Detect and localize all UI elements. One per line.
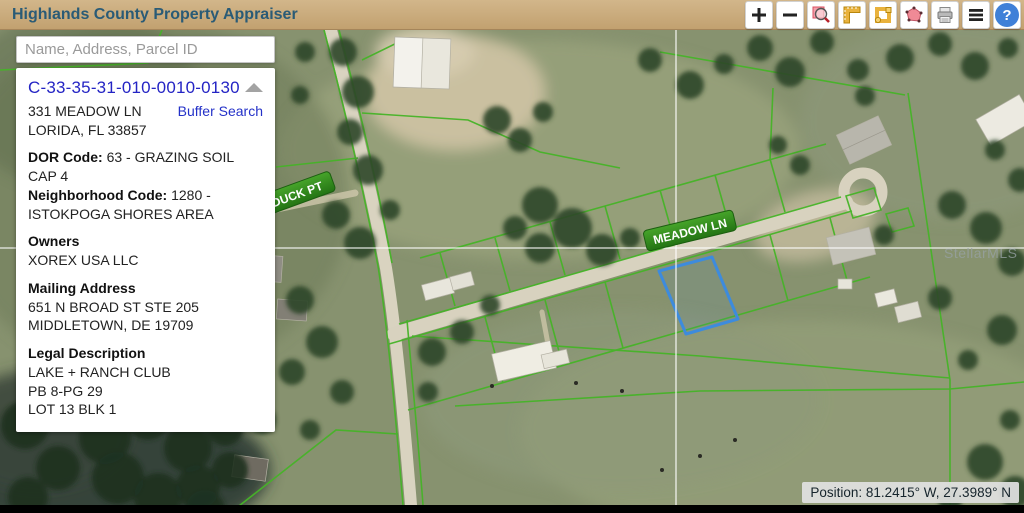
parcel-city: LORIDA, FL 33857 <box>28 121 263 140</box>
imagery-watermark: StellarMLS <box>944 245 1017 261</box>
owners-value: XOREX USA LLC <box>28 251 263 270</box>
draw-buffer-polygon-button[interactable] <box>900 1 928 29</box>
minus-icon <box>780 5 800 25</box>
corner-ruler-icon <box>842 5 862 25</box>
zoom-window-button[interactable] <box>807 1 835 29</box>
zoom-out-button[interactable] <box>776 1 804 29</box>
printer-icon <box>935 5 955 25</box>
plus-icon <box>749 5 769 25</box>
legal-line2: PB 8-PG 29 <box>28 382 263 401</box>
collapse-card-icon[interactable] <box>245 83 263 92</box>
legal-line3: LOT 13 BLK 1 <box>28 400 263 419</box>
zoom-in-button[interactable] <box>745 1 773 29</box>
polygon-icon <box>904 5 924 25</box>
app-window: DUCK PT MEADOW LN StellarMLS Highlands C… <box>0 0 1024 513</box>
mailing-label: Mailing Address <box>28 280 136 296</box>
hamburger-menu-icon <box>966 5 986 25</box>
parcel-address: 331 MEADOW LN <box>28 102 142 121</box>
menu-button[interactable] <box>962 1 990 29</box>
mailing-line2: MIDDLETOWN, DE 19709 <box>28 316 263 335</box>
measure-area-button[interactable] <box>869 1 897 29</box>
legal-line1: LAKE + RANCH CLUB <box>28 363 263 382</box>
position-text: Position: 81.2415° W, 27.3989° N <box>810 485 1011 500</box>
page-title: Highlands County Property Appraiser <box>0 6 298 24</box>
help-icon: ? <box>995 3 1019 27</box>
help-button[interactable]: ? <box>993 1 1021 29</box>
map-toolbar: ? <box>745 1 1021 29</box>
measure-length-button[interactable] <box>838 1 866 29</box>
neighborhood-label: Neighborhood Code: <box>28 187 167 203</box>
print-button[interactable] <box>931 1 959 29</box>
parcel-info-card: C-33-35-31-010-0010-0130 331 MEADOW LN B… <box>16 68 275 432</box>
search-input[interactable] <box>16 36 275 63</box>
app-header: Highlands County Property Appraiser <box>0 0 1024 30</box>
area-ruler-icon <box>873 5 893 25</box>
legal-label: Legal Description <box>28 345 145 361</box>
buffer-search-link[interactable]: Buffer Search <box>178 102 263 121</box>
mailing-line1: 651 N BROAD ST STE 205 <box>28 298 263 317</box>
attribution-strip <box>0 505 1024 513</box>
dor-code-label: DOR Code: <box>28 149 103 165</box>
parcel-id-link[interactable]: C-33-35-31-010-0010-0130 <box>28 77 240 100</box>
owners-label: Owners <box>28 233 79 249</box>
position-indicator: Position: 81.2415° W, 27.3989° N <box>802 482 1019 503</box>
zoom-window-icon <box>811 5 831 25</box>
